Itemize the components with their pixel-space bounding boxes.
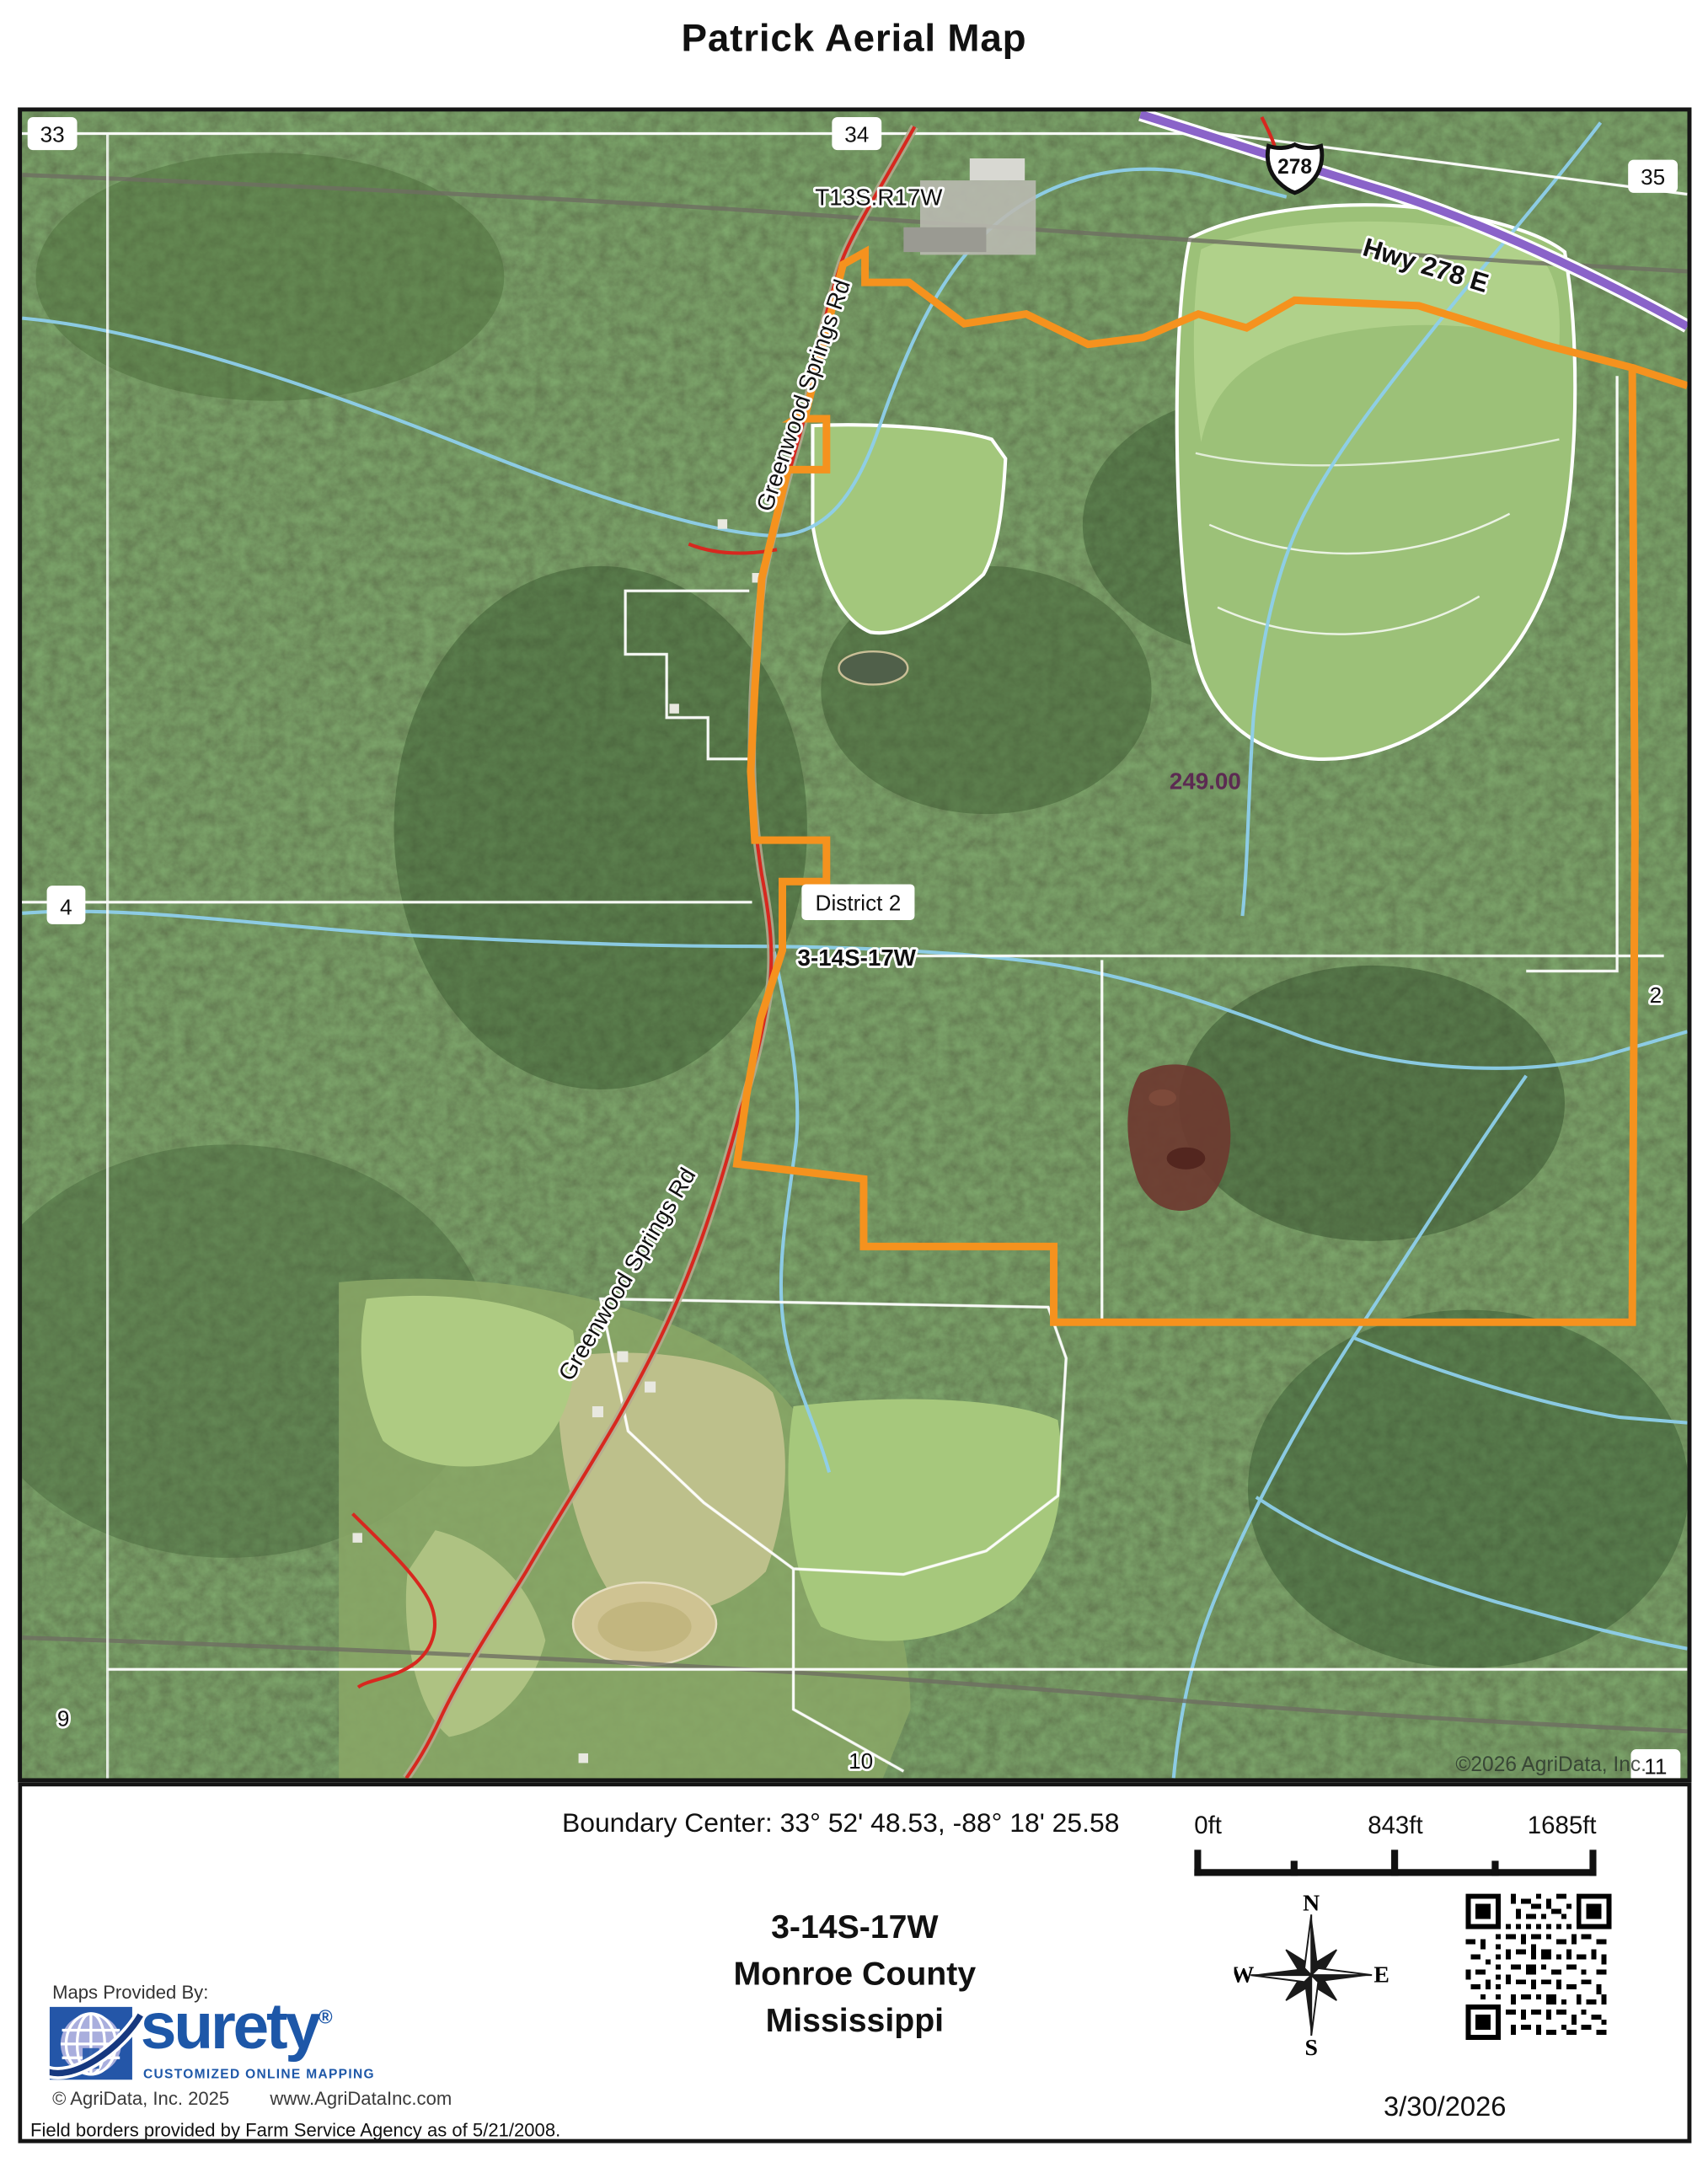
pond [839, 651, 908, 684]
svg-text:4: 4 [60, 894, 72, 919]
compass-n: N [1303, 1894, 1320, 1917]
district-label: District 2 [801, 884, 914, 920]
section-label-10: 10 [849, 1748, 873, 1774]
page: Patrick Aerial Map [0, 0, 1708, 2157]
agridata-copyright: © AgriData, Inc. 2025 [52, 2088, 229, 2109]
section-label-34: 34 [832, 117, 881, 150]
compass-w: W [1234, 1962, 1255, 1988]
scale-tick-0: 0ft [1194, 1812, 1222, 1840]
footer-panel: Boundary Center: 33° 52' 48.53, -88° 18'… [18, 1782, 1691, 2143]
map-date: 3/30/2026 [1328, 2092, 1562, 2124]
svg-text:33: 33 [40, 121, 65, 147]
boundary-center-text: Boundary Center: 33° 52' 48.53, -88° 18'… [562, 1808, 1119, 1840]
map-copyright: ©2026 AgriData, Inc. [1455, 1753, 1646, 1776]
surety-globe-icon [50, 2007, 143, 2080]
surety-wordmark: surety® [141, 1993, 333, 2058]
wetland [1127, 1064, 1230, 1211]
qr-code [1465, 1894, 1611, 2040]
section-label-33: 33 [28, 117, 78, 150]
svg-text:11: 11 [1644, 1753, 1667, 1778]
field-borders-disclaimer: Field borders provided by Farm Service A… [30, 2120, 560, 2141]
svg-text:34: 34 [844, 121, 869, 147]
section-label-2: 2 [1650, 982, 1662, 1008]
section-label-4: 4 [47, 886, 86, 924]
registered-mark: ® [319, 2005, 333, 2027]
section-label-9: 9 [57, 1705, 70, 1731]
surety-tagline: CUSTOMIZED ONLINE MAPPING [143, 2068, 375, 2083]
page-title: Patrick Aerial Map [0, 17, 1708, 61]
agridata-website: www.AgriDataInc.com [270, 2088, 452, 2109]
scale-bar: 0ft 843ft 1685ft [1194, 1812, 1596, 1883]
section-label-35: 35 [1628, 160, 1678, 193]
location-trs: 3-14S-17W [22, 1905, 1687, 1952]
trs-line-label: 3-14S-17W [798, 945, 917, 971]
scale-tick-2: 1685ft [1528, 1812, 1597, 1840]
aerial-map: 33 34 35 4 2 9 10 11 T13S.R17W District … [18, 108, 1691, 1783]
scale-bar-graphic [1194, 1847, 1596, 1877]
svg-text:District 2: District 2 [816, 891, 902, 916]
compass-s: S [1304, 2035, 1317, 2057]
scale-tick-1: 843ft [1368, 1812, 1422, 1840]
acreage-label: 249.00 [1170, 768, 1241, 795]
svg-text:278: 278 [1277, 156, 1312, 179]
township-label: T13S.R17W [815, 185, 943, 211]
aerial-map-svg: 33 34 35 4 2 9 10 11 T13S.R17W District … [22, 111, 1687, 1778]
compass-e: E [1373, 1962, 1388, 1988]
svg-text:35: 35 [1641, 164, 1665, 190]
compass-rose-icon: N E S W [1234, 1894, 1389, 2057]
